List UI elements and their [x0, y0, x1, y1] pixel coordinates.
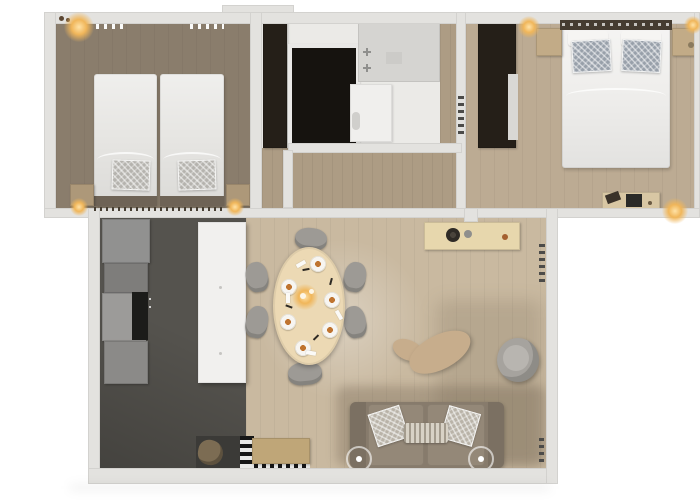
bedside-lamp [226, 198, 244, 216]
bedside-lamp [518, 16, 540, 38]
cooktop-knob [149, 306, 151, 308]
place-setting [310, 256, 326, 272]
island-handle-dot [219, 286, 222, 289]
island-handle-dot [219, 352, 222, 355]
ceiling-lamp-twin-bedroom [64, 12, 94, 42]
decor-cup-gray [464, 230, 472, 238]
wall-bathroom-internal [288, 143, 462, 153]
duvet-fold [566, 88, 665, 104]
bathroom-tall-cabinet [263, 18, 287, 148]
corner-decor-dot [59, 16, 64, 21]
curtain-glider-track [190, 24, 224, 29]
bedside-lamp [684, 16, 700, 34]
candle-dot [309, 289, 314, 294]
napkin [286, 293, 290, 303]
place-setting [324, 292, 340, 308]
wall-left [44, 12, 56, 218]
tub-chair [497, 338, 539, 382]
kitchen-cabinet-bottom [104, 341, 148, 384]
wall-column-notch [464, 208, 478, 222]
window-trim-dots [94, 207, 226, 211]
entry-bench [252, 438, 310, 464]
pillow-twin-right [177, 159, 216, 190]
faucet-handle-icon [363, 64, 371, 72]
candle-dot [300, 293, 306, 299]
wall-living-left [88, 208, 100, 484]
cooktop [132, 292, 148, 340]
wall-hallway-vertical [283, 150, 293, 208]
side-table-top-dot [356, 456, 362, 462]
wall-drop-shadow [70, 484, 550, 491]
wardrobe-ledge [508, 74, 518, 140]
kitchen-island [198, 222, 246, 383]
kitchen-cabinet-2 [104, 263, 148, 293]
desk-laptop [626, 194, 642, 207]
apartment-floor-plan [0, 0, 700, 500]
shower-dark-tile [292, 48, 356, 146]
patterned-pillow-right [621, 39, 662, 73]
radiator-living-bottom-right [539, 438, 544, 462]
nightstand-double-left [536, 28, 562, 56]
wall-bedroom-bathroom-divider [250, 12, 262, 210]
desk-decor-dot [648, 201, 652, 205]
decor-knob-orange [502, 234, 508, 240]
faucet-handle-icon [363, 48, 371, 56]
twin-headboard-right [160, 196, 224, 206]
place-setting [280, 314, 296, 330]
twin-headboard-left [94, 196, 157, 206]
place-setting [322, 322, 338, 338]
side-table-top-dot [478, 456, 484, 462]
bathroom-wood-strip [440, 24, 456, 150]
cooktop-knob [149, 298, 151, 300]
radiator-living-right [539, 244, 545, 286]
kitchen-cabinet-top [102, 219, 150, 263]
pillow-twin-left [111, 159, 150, 190]
patterned-pillow-left [571, 39, 612, 73]
tub-chair-seat [503, 345, 529, 371]
bedside-lamp [70, 198, 88, 216]
curtain-glider-track [96, 24, 126, 29]
radiator-bedroom-double [458, 96, 464, 136]
headboard-stud-dots [562, 23, 670, 26]
floor-lamp-bedroom-double [662, 198, 688, 224]
shower-soap-tray [386, 52, 402, 64]
toilet-bowl-detail [352, 112, 360, 130]
decor-bowl-dark [446, 228, 460, 242]
wall-living-bottom [88, 468, 558, 484]
wall-right [694, 12, 700, 218]
sofa-lumbar-cushion [404, 423, 448, 443]
wall-living-right [546, 208, 558, 484]
